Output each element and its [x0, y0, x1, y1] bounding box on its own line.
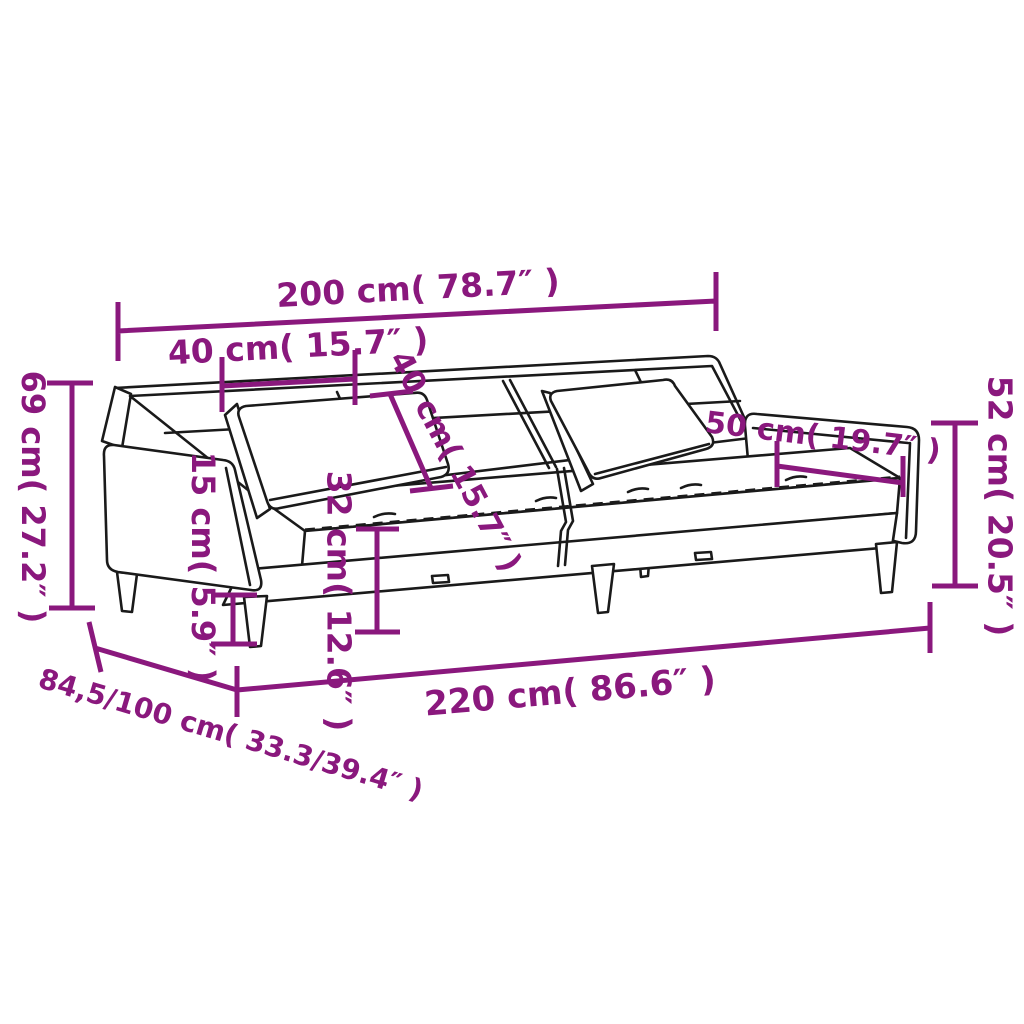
label-armrest-height: 52 cm( 20.5″ ) — [980, 376, 1019, 637]
label-overall-height: 69 cm( 27.2″ ) — [14, 371, 52, 624]
diagram-canvas: 200 cm( 78.7″ ) 40 cm( 15.7″ ) 40 cm( 15… — [0, 0, 1024, 1024]
leg-front-left — [117, 572, 137, 612]
sofa-dimension-diagram: 200 cm( 78.7″ ) 40 cm( 15.7″ ) 40 cm( 15… — [0, 0, 1024, 1024]
backrest-left-end-panel — [102, 387, 131, 448]
leg-front-middle — [592, 564, 614, 613]
label-top-width: 200 cm( 78.7″ ) — [275, 261, 560, 315]
base-clip-right — [695, 552, 712, 560]
label-seat-height: 32 cm( 12.6″ ) — [319, 471, 358, 732]
label-leg-height: 15 cm( 5.9″ ) — [184, 452, 222, 683]
leg-front-second — [244, 596, 267, 647]
sofa-line-art — [102, 356, 919, 647]
dim-overall-height — [47, 383, 95, 608]
label-bed-depth: 84,5/100 cm( 33.3/39.4″ ) — [35, 662, 427, 807]
leg-front-right — [876, 542, 897, 593]
base-clip-left — [432, 575, 449, 583]
